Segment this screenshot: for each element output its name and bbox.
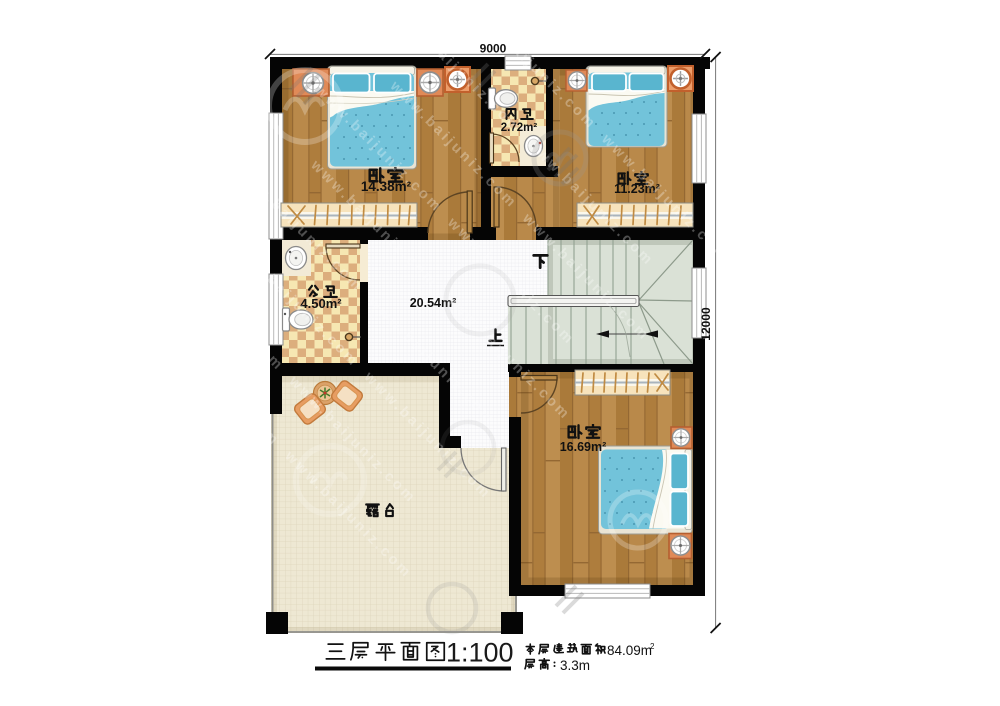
svg-text:3.3m: 3.3m: [560, 658, 590, 673]
svg-text:2: 2: [650, 642, 655, 651]
svg-text:1:100: 1:100: [446, 638, 514, 668]
svg-text:84.09m: 84.09m: [607, 643, 652, 658]
svg-text:12000: 12000: [699, 307, 713, 341]
svg-text:16.69m²: 16.69m²: [560, 440, 607, 454]
